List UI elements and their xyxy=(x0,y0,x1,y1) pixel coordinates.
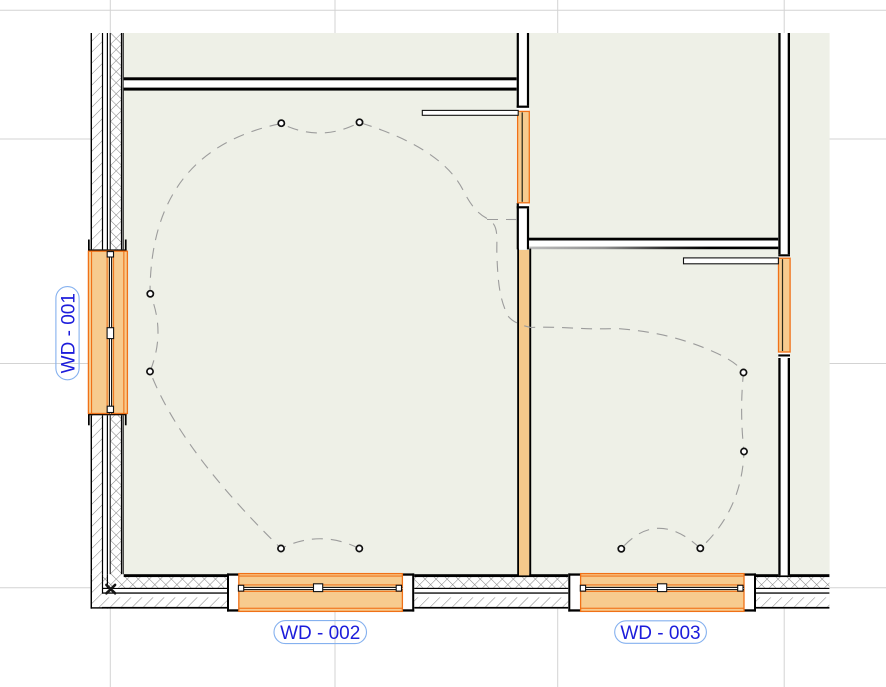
svg-text:WD - 002: WD - 002 xyxy=(280,623,360,644)
svg-text:WD - 003: WD - 003 xyxy=(620,623,700,644)
svg-text:WD - 001: WD - 001 xyxy=(59,293,80,373)
